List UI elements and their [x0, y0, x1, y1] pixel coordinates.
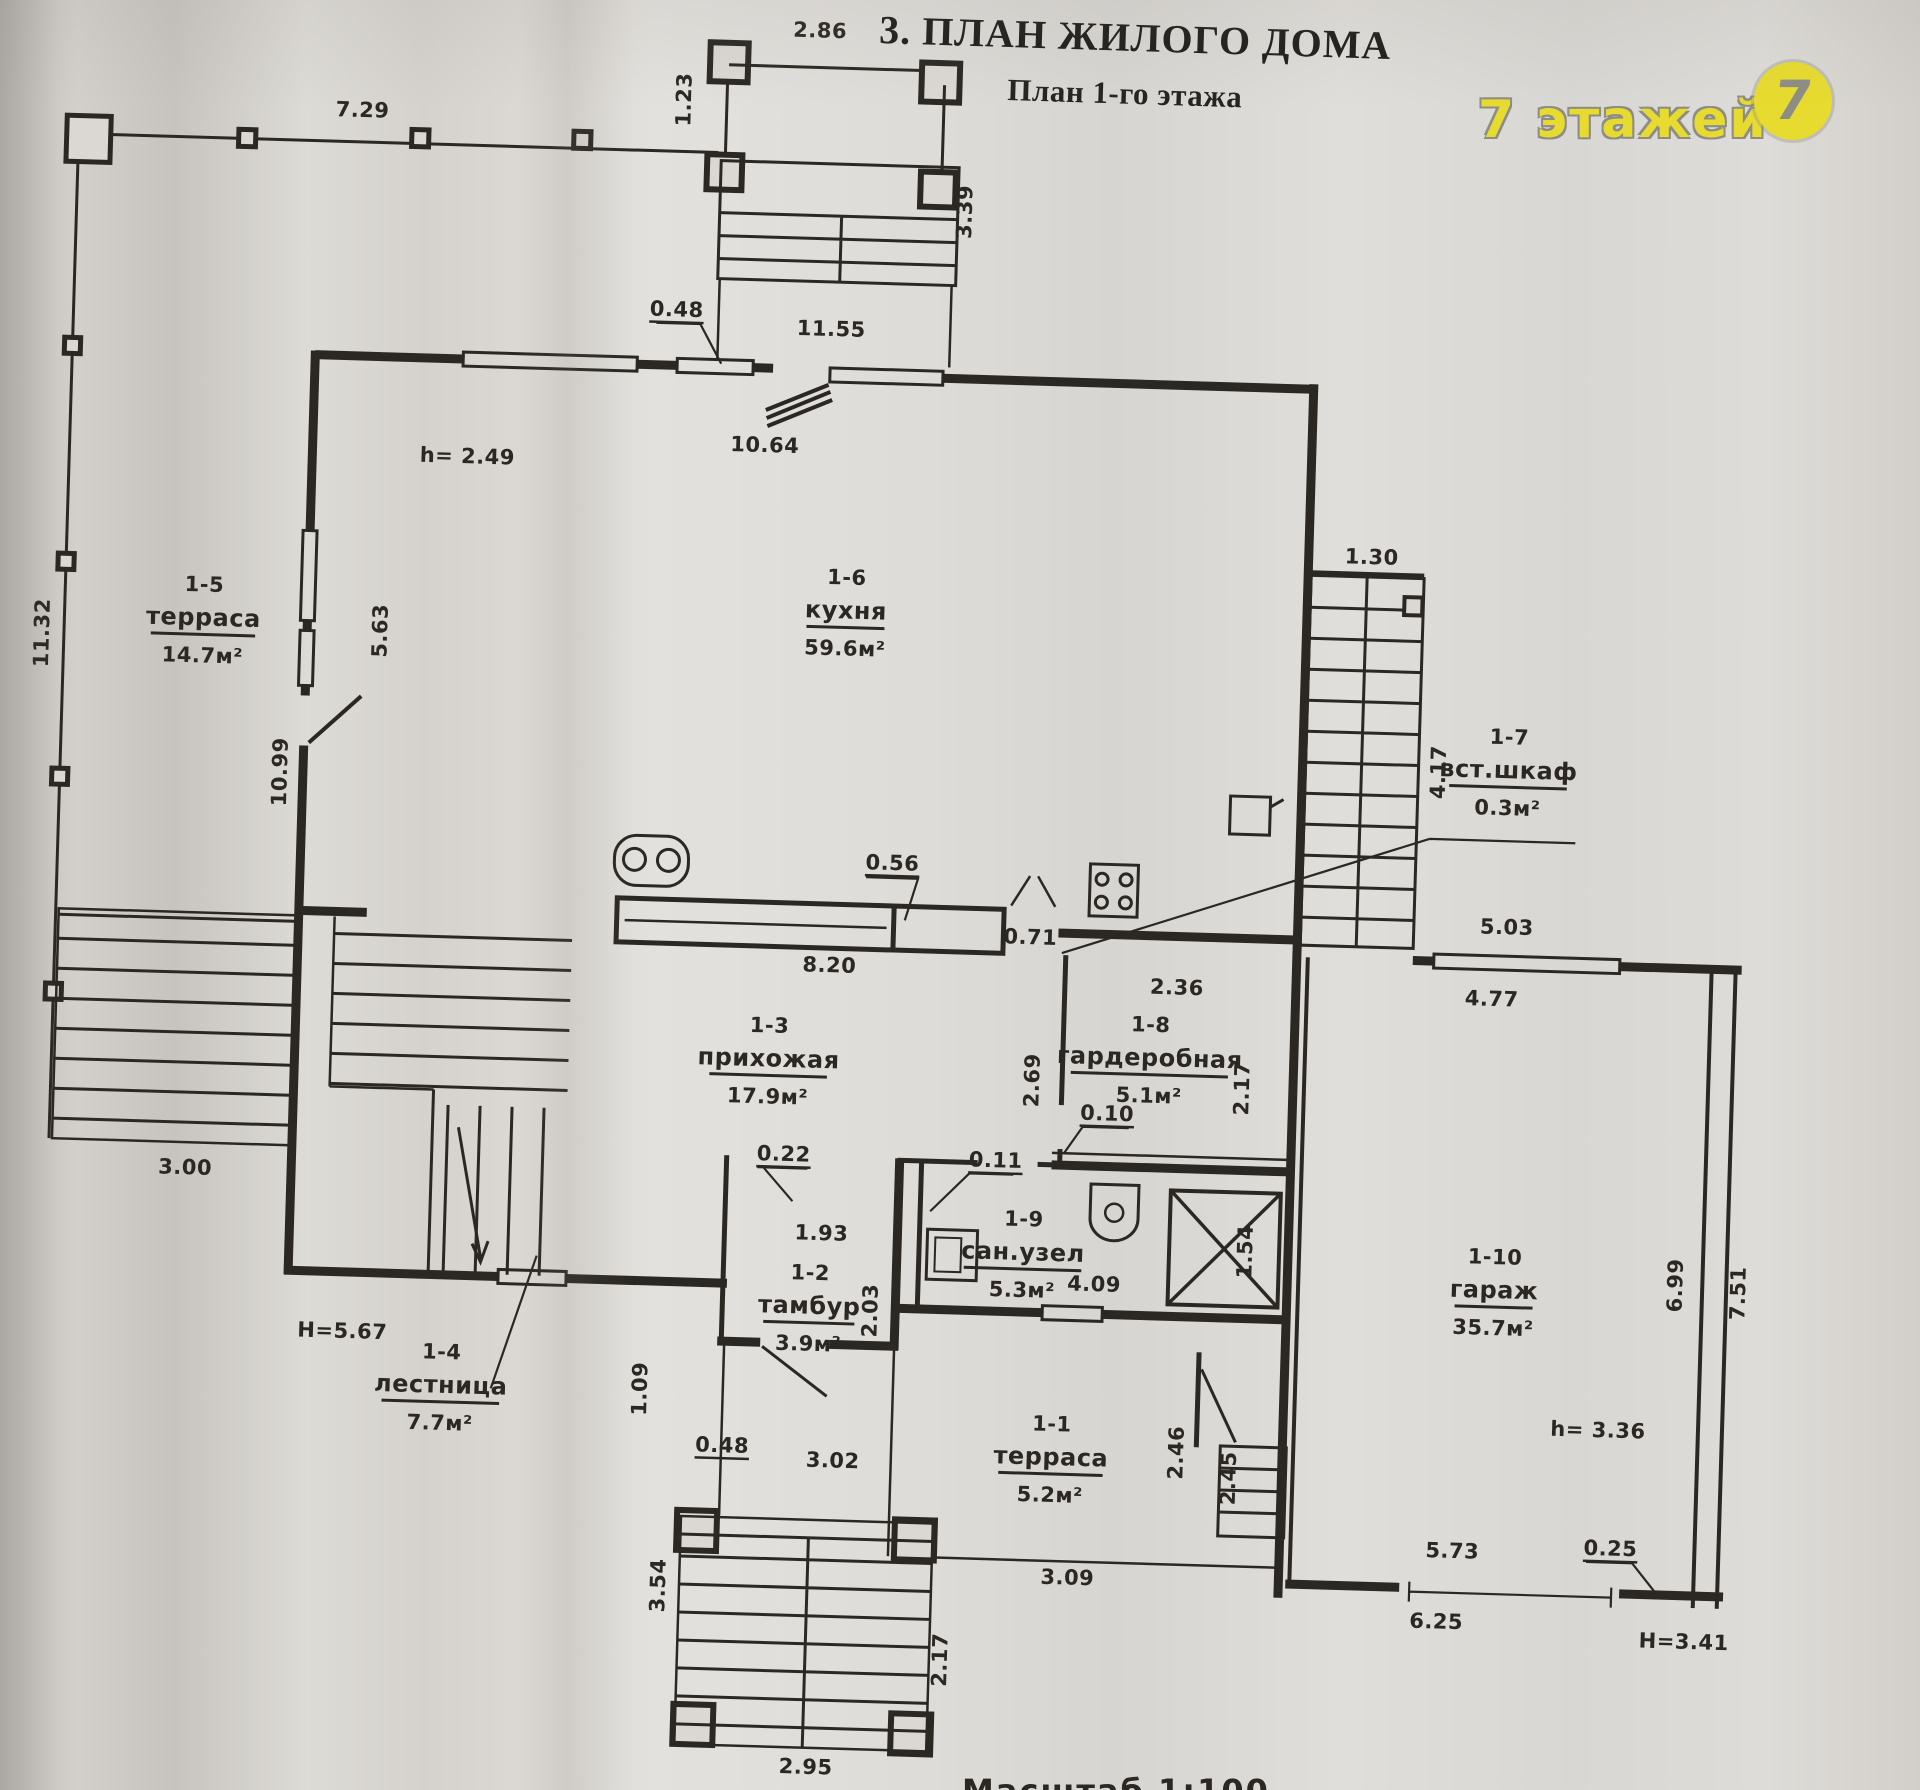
- svg-text:5.73: 5.73: [1425, 1538, 1480, 1564]
- svg-text:0.48: 0.48: [695, 1432, 750, 1458]
- svg-text:1-9: 1-9: [1004, 1206, 1044, 1231]
- svg-text:4.09: 4.09: [1067, 1271, 1122, 1297]
- dimension-label: 0.48: [695, 1432, 750, 1459]
- svg-text:3.00: 3.00: [158, 1154, 213, 1180]
- dimension-label: 11.32: [29, 598, 55, 668]
- dimension-label: 0.71: [1003, 924, 1058, 950]
- svg-text:кухня: кухня: [805, 595, 888, 625]
- dimension-label: 6.25: [1409, 1609, 1464, 1635]
- svg-text:H=3.41: H=3.41: [1638, 1628, 1729, 1655]
- dimension-label: 2.45: [1216, 1451, 1242, 1506]
- svg-text:3.09: 3.09: [1040, 1565, 1095, 1591]
- svg-text:терраса: терраса: [993, 1441, 1108, 1472]
- dimension-label: 0.10: [1080, 1101, 1135, 1128]
- svg-text:лестница: лестница: [374, 1369, 508, 1401]
- svg-text:10.99: 10.99: [267, 737, 293, 807]
- wall-cabinet-box: [1229, 796, 1283, 836]
- dimension-label: 2.46: [1163, 1425, 1189, 1480]
- dimension-label: 3.54: [645, 1558, 671, 1613]
- dimension-label: 7.29: [335, 97, 390, 123]
- svg-text:1-7: 1-7: [1489, 725, 1529, 750]
- dimension-label: h= 3.36: [1550, 1417, 1646, 1444]
- right-staircase: [1300, 573, 1424, 948]
- dimension-label: 4.17: [1426, 745, 1452, 800]
- svg-text:17.9м²: 17.9м²: [727, 1083, 809, 1109]
- svg-text:2.86: 2.86: [793, 18, 848, 44]
- leader-lines: [485, 319, 1694, 1609]
- kitchen-sink: [614, 835, 689, 887]
- svg-text:2.95: 2.95: [778, 1754, 833, 1780]
- dimension-label: h= 2.49: [419, 443, 515, 470]
- svg-text:5.2м²: 5.2м²: [1016, 1482, 1083, 1508]
- room-label-1-1: 1-1терраса5.2м²: [992, 1410, 1109, 1508]
- dimension-label: 10.99: [267, 737, 293, 807]
- dimension-label: 11.55: [796, 316, 866, 342]
- svg-text:7.29: 7.29: [335, 97, 390, 123]
- dimension-label: 3.02: [805, 1448, 860, 1474]
- dimension-label: 5.73: [1425, 1538, 1480, 1564]
- svg-text:35.7м²: 35.7м²: [1452, 1315, 1534, 1341]
- dimension-label: 2.17: [1229, 1061, 1255, 1116]
- windows: [280, 347, 1637, 1336]
- dimension-label: 8.20: [802, 952, 857, 978]
- svg-text:сан.узел: сан.узел: [961, 1236, 1085, 1268]
- scanned-floor-plan-page: 1-5терраса14.7м²1-6кухня59.6м²1-7вст.шка…: [0, 0, 1920, 1790]
- dimension-label: 0.22: [756, 1141, 811, 1168]
- interior-staircase: [324, 916, 572, 1278]
- svg-text:0.11: 0.11: [968, 1147, 1023, 1173]
- svg-text:2.36: 2.36: [1150, 975, 1205, 1001]
- svg-text:вст.шкаф: вст.шкаф: [1439, 754, 1578, 786]
- dimension-label: 4.77: [1464, 986, 1519, 1012]
- svg-text:H=5.67: H=5.67: [297, 1318, 388, 1345]
- dimension-label: 3.09: [1040, 1565, 1095, 1591]
- svg-text:4.17: 4.17: [1426, 745, 1452, 800]
- dimension-label: 10.64: [730, 432, 800, 458]
- dimension-label: 1.54: [1232, 1224, 1258, 1279]
- terrace-1-1-and-steps: [285, 695, 1308, 1568]
- svg-text:0.3м²: 0.3м²: [1474, 795, 1541, 821]
- interior-partitions: [602, 898, 1213, 1447]
- svg-text:1-2: 1-2: [790, 1260, 830, 1285]
- shower-tray: [1168, 1190, 1281, 1307]
- door-swing-marks: [1011, 876, 1056, 907]
- svg-text:2.03: 2.03: [857, 1283, 883, 1338]
- svg-text:гардеробная: гардеробная: [1057, 1041, 1243, 1074]
- dimension-label: 0.56: [865, 850, 920, 877]
- bottom-exterior-stairs: [670, 1510, 937, 1755]
- dimension-label: 0.48: [649, 297, 704, 324]
- svg-text:8.20: 8.20: [802, 952, 857, 978]
- dimension-label: H=5.67: [297, 1318, 388, 1345]
- dimension-label: H=3.41: [1638, 1628, 1729, 1655]
- svg-text:0.48: 0.48: [650, 297, 705, 323]
- dimension-label: 4.09: [1067, 1271, 1122, 1297]
- room-label-1-7: 1-7вст.шкаф0.3м²: [1438, 723, 1579, 822]
- scale-note: Масштаб 1:100: [962, 1772, 1270, 1790]
- dimension-label: 2.17: [927, 1632, 953, 1687]
- svg-text:59.6м²: 59.6м²: [804, 635, 886, 661]
- svg-text:5.03: 5.03: [1480, 914, 1535, 940]
- dimension-label: 2.86: [793, 18, 848, 44]
- dimension-label: 2.95: [778, 1754, 833, 1780]
- left-exterior-stairs: [52, 908, 299, 1145]
- room-label-1-3: 1-3прихожая17.9м²: [696, 1011, 841, 1110]
- dimension-label: 2.69: [1019, 1053, 1045, 1108]
- svg-text:11.55: 11.55: [796, 316, 866, 342]
- svg-text:1-1: 1-1: [1032, 1411, 1072, 1436]
- svg-text:2.46: 2.46: [1163, 1425, 1189, 1480]
- svg-text:3.54: 3.54: [645, 1558, 671, 1613]
- kitchen-island-inner-line: [618, 920, 1297, 1160]
- room-label-1-8: 1-8гардеробная5.1м²: [1056, 1010, 1244, 1110]
- svg-text:терраса: терраса: [146, 602, 261, 633]
- svg-text:4.77: 4.77: [1464, 986, 1519, 1012]
- svg-text:0.25: 0.25: [1583, 1536, 1638, 1562]
- dimension-label: 3.00: [158, 1154, 213, 1180]
- room-label-1-5: 1-5терраса14.7м²: [145, 571, 262, 669]
- dimension-label: 0.25: [1583, 1536, 1638, 1563]
- svg-text:14.7м²: 14.7м²: [161, 642, 243, 668]
- svg-text:2.69: 2.69: [1019, 1053, 1045, 1108]
- svg-text:3.39: 3.39: [952, 185, 978, 240]
- svg-text:1.93: 1.93: [794, 1220, 849, 1246]
- floor-plan-canvas: 1-5терраса14.7м²1-6кухня59.6м²1-7вст.шка…: [0, 0, 1920, 1790]
- dimension-label: 5.03: [1480, 914, 1535, 940]
- svg-text:7.7м²: 7.7м²: [406, 1410, 473, 1436]
- dimension-label: 2.03: [857, 1283, 883, 1338]
- room-label-1-6: 1-6кухня59.6м²: [804, 564, 889, 661]
- svg-text:1-3: 1-3: [750, 1013, 790, 1038]
- svg-text:прихожая: прихожая: [697, 1042, 840, 1074]
- svg-text:1.30: 1.30: [1345, 544, 1400, 570]
- dimension-label: 2.36: [1150, 975, 1205, 1001]
- svg-text:1.23: 1.23: [671, 72, 697, 127]
- svg-text:10.64: 10.64: [730, 432, 800, 458]
- dimension-label: 1.30: [1345, 544, 1400, 570]
- svg-text:11.32: 11.32: [29, 598, 55, 668]
- svg-text:5.3м²: 5.3м²: [988, 1277, 1055, 1303]
- svg-text:0.56: 0.56: [865, 850, 920, 876]
- entry-door-hatch: [765, 383, 832, 428]
- svg-text:7.51: 7.51: [1725, 1266, 1751, 1321]
- room-label-1-4: 1-4лестница7.7м²: [373, 1338, 509, 1437]
- dimension-label: 1.09: [627, 1361, 653, 1416]
- dimension-label: 0.11: [968, 1147, 1023, 1174]
- svg-text:3.02: 3.02: [805, 1448, 860, 1474]
- svg-text:0.10: 0.10: [1080, 1101, 1135, 1127]
- dimension-label: 5.63: [367, 603, 393, 658]
- svg-text:2.45: 2.45: [1216, 1451, 1242, 1506]
- svg-text:1-10: 1-10: [1467, 1244, 1522, 1270]
- dimension-label: 6.99: [1662, 1258, 1688, 1313]
- svg-text:1-5: 1-5: [184, 572, 224, 597]
- cooktop: [1089, 864, 1139, 917]
- svg-text:h= 3.36: h= 3.36: [1550, 1417, 1646, 1444]
- room-label-1-10: 1-10гараж35.7м²: [1448, 1244, 1539, 1342]
- dimension-label: 7.51: [1725, 1266, 1751, 1321]
- toilet: [1089, 1184, 1139, 1241]
- svg-text:тамбур: тамбур: [758, 1290, 861, 1321]
- svg-text:1-4: 1-4: [422, 1339, 462, 1364]
- svg-text:6.99: 6.99: [1662, 1258, 1688, 1313]
- dimension-label: 1.23: [671, 72, 697, 127]
- dimension-label: 3.39: [952, 185, 978, 240]
- svg-text:0.71: 0.71: [1003, 924, 1058, 950]
- dimension-label: 1.93: [794, 1220, 849, 1246]
- svg-text:h= 2.49: h= 2.49: [419, 443, 515, 470]
- svg-text:2.17: 2.17: [927, 1632, 953, 1687]
- svg-text:2.17: 2.17: [1229, 1061, 1255, 1116]
- svg-text:1.09: 1.09: [627, 1361, 653, 1416]
- exterior-walls: [275, 351, 1758, 1611]
- svg-text:3.9м²: 3.9м²: [775, 1331, 842, 1357]
- svg-text:1.54: 1.54: [1232, 1224, 1258, 1279]
- svg-text:5.63: 5.63: [367, 603, 393, 658]
- svg-text:гараж: гараж: [1449, 1275, 1538, 1306]
- svg-text:0.22: 0.22: [757, 1141, 812, 1167]
- svg-text:6.25: 6.25: [1409, 1609, 1464, 1635]
- svg-text:1-6: 1-6: [827, 565, 867, 590]
- svg-text:1-8: 1-8: [1131, 1012, 1171, 1037]
